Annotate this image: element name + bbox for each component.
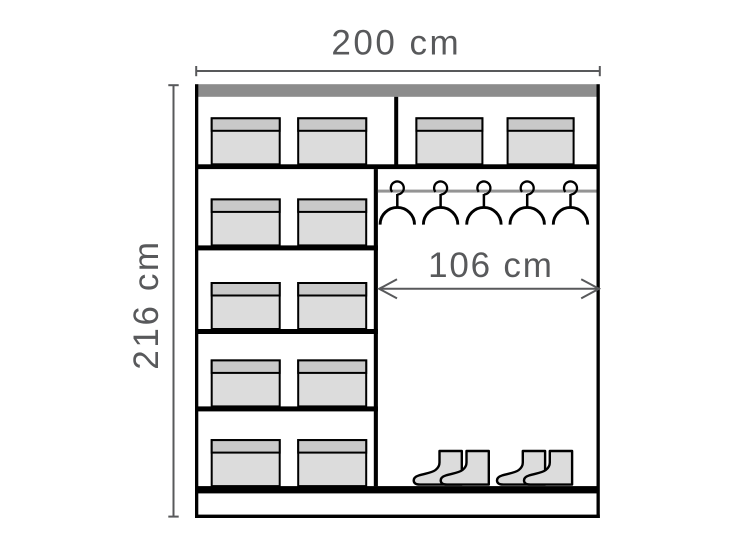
svg-text:216 cm: 216 cm [127, 239, 166, 369]
svg-text:200 cm: 200 cm [331, 24, 461, 63]
svg-text:106 cm: 106 cm [428, 246, 554, 285]
